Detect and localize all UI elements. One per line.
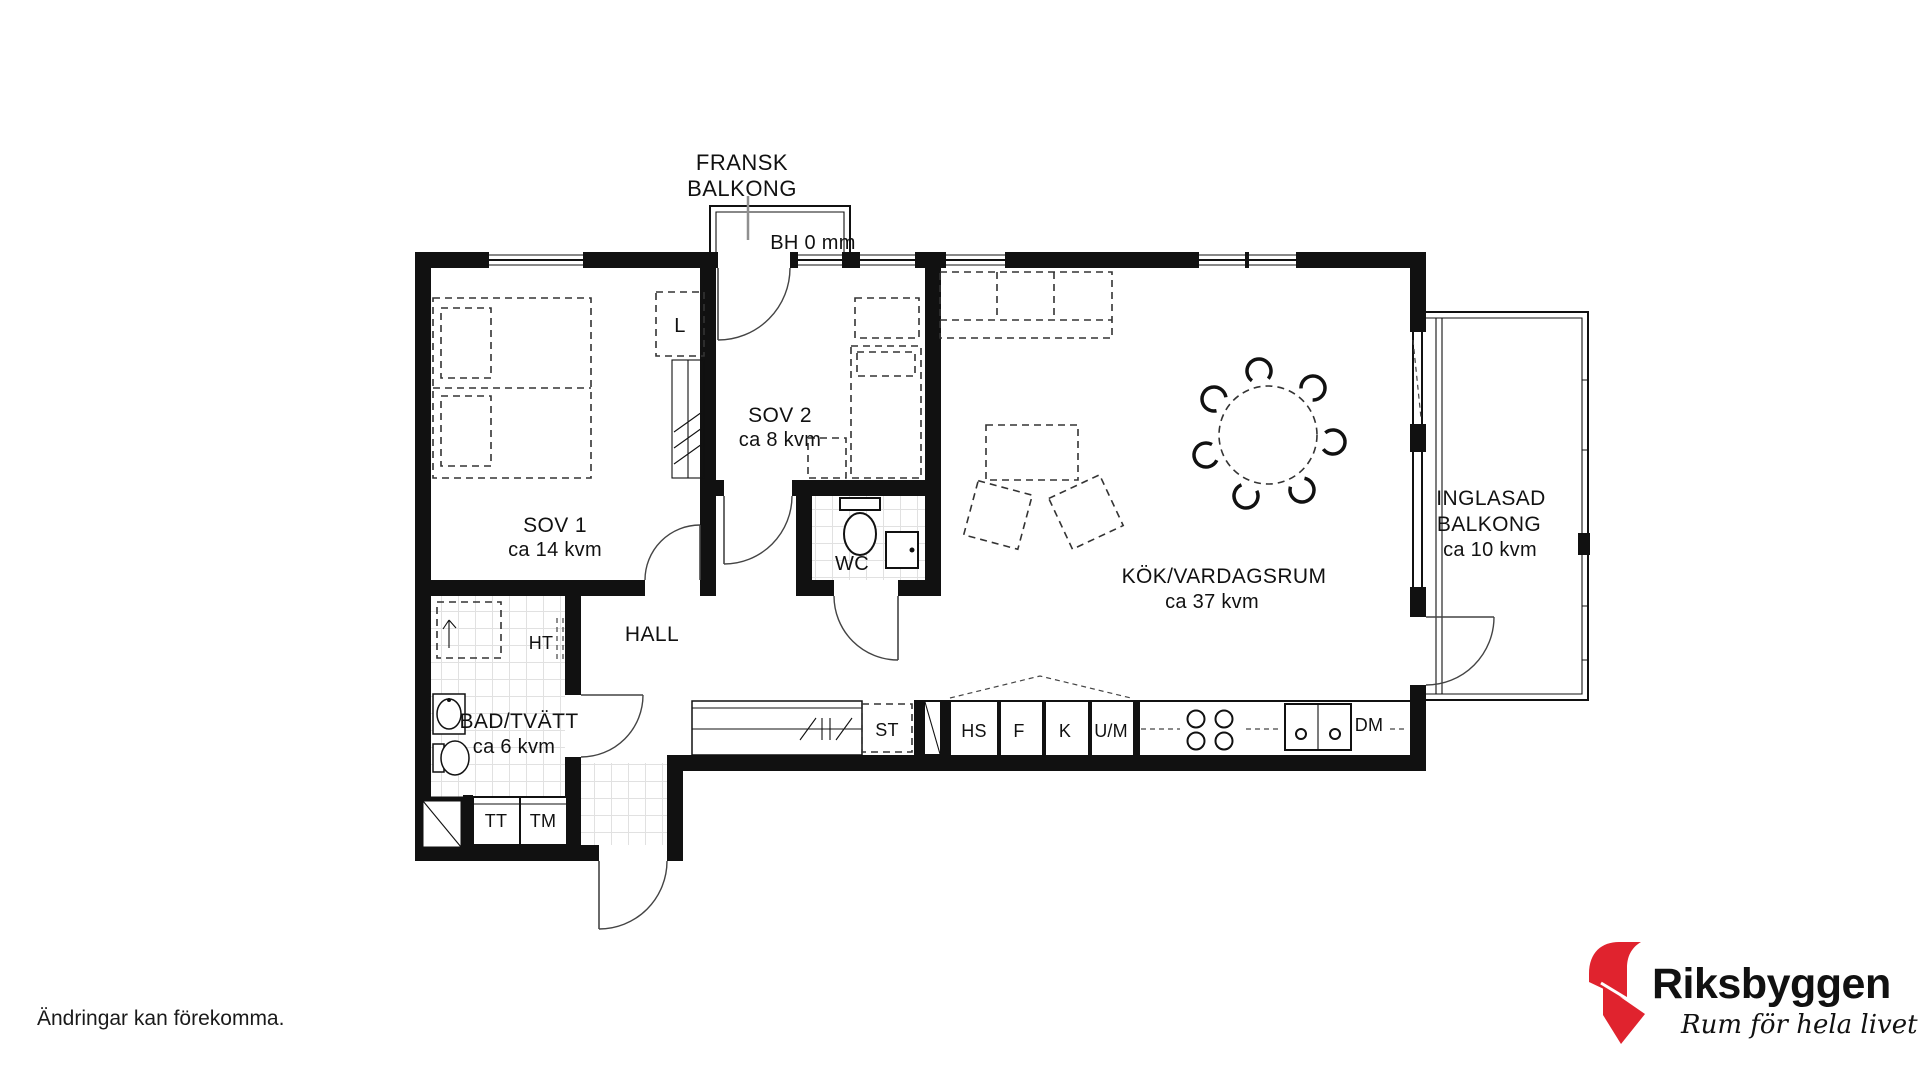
door-entrance bbox=[599, 861, 667, 929]
brand-name: Riksbyggen bbox=[1652, 960, 1891, 1008]
living-balcony-glazing bbox=[1413, 332, 1422, 587]
chair-icon bbox=[1288, 476, 1316, 504]
window-sov1 bbox=[484, 252, 588, 268]
fixture-label-st: ST bbox=[875, 720, 898, 740]
room-label-inglasad-1: INGLASAD bbox=[1436, 487, 1545, 510]
kitchen bbox=[941, 676, 1410, 750]
room-label-bad: BAD/TVÄTT bbox=[459, 710, 578, 733]
sofa bbox=[940, 272, 1112, 338]
room-area-sov2: ca 8 kvm bbox=[739, 429, 821, 451]
room-area-kok: ca 37 kvm bbox=[1165, 591, 1259, 613]
room-label-sov1: SOV 1 bbox=[523, 514, 587, 537]
fixture-label-hs: HS bbox=[961, 721, 986, 741]
room-label-kok: KÖK/VARDAGSRUM bbox=[1122, 565, 1327, 588]
chair-icon bbox=[1230, 480, 1262, 512]
fixture-label-dm: DM bbox=[1355, 715, 1383, 735]
closet-l-label: L bbox=[674, 315, 685, 337]
coffee-table bbox=[986, 425, 1078, 480]
floor-plan-page: FRANSK BALKONG BH 0 mm L SOV 2 ca 8 kvm … bbox=[0, 0, 1920, 1080]
room-label-hall: HALL bbox=[625, 623, 679, 646]
fixture-label-tm: TM bbox=[530, 811, 556, 831]
fixture-label-f: F bbox=[1013, 721, 1024, 741]
chair-icon bbox=[1200, 385, 1228, 413]
room-area-sov1: ca 14 kvm bbox=[508, 539, 602, 561]
window-living-1 bbox=[941, 252, 1010, 268]
fixture-label-ht: HT bbox=[529, 633, 553, 653]
dining-table bbox=[1190, 354, 1350, 512]
window-living-2 bbox=[1194, 252, 1301, 268]
toilet-icon bbox=[840, 498, 880, 510]
armchair bbox=[1049, 475, 1123, 549]
floor-plan-drawing: FRANSK BALKONG BH 0 mm L SOV 2 ca 8 kvm … bbox=[0, 0, 1920, 1080]
balcony-height-note: BH 0 mm bbox=[770, 232, 855, 254]
disclaimer-text: Ändringar kan förekomma. bbox=[37, 1007, 284, 1030]
chair-icon bbox=[1190, 439, 1222, 471]
chair-icon bbox=[1316, 425, 1350, 459]
hall-wardrobe bbox=[692, 701, 941, 755]
fixture-label-tt: TT bbox=[485, 811, 507, 831]
kitchen-sink-icon bbox=[1285, 704, 1351, 750]
door-french-balcony bbox=[718, 268, 790, 340]
brand-tagline: Rum för hela livet bbox=[1680, 1010, 1918, 1040]
doors bbox=[581, 268, 1494, 929]
chair-icon bbox=[1242, 354, 1276, 388]
tall-cabinet bbox=[924, 701, 941, 755]
chair-icon bbox=[1301, 376, 1326, 401]
armchair bbox=[964, 481, 1033, 550]
fixture-label-um: U/M bbox=[1094, 721, 1128, 741]
french-balcony-label-2: BALKONG bbox=[687, 176, 797, 201]
furniture-sov2 bbox=[808, 298, 921, 478]
window-sov2 bbox=[855, 252, 920, 268]
room-label-wc: WC bbox=[835, 553, 869, 575]
bed-sov1 bbox=[433, 298, 591, 478]
room-area-inglasad: ca 10 kvm bbox=[1443, 539, 1537, 561]
stove-icon bbox=[1188, 711, 1233, 750]
room-label-inglasad-2: BALKONG bbox=[1437, 513, 1541, 536]
door-sov1 bbox=[645, 525, 700, 580]
riksbyggen-logo: Riksbyggen Rum för hela livet bbox=[1589, 942, 1918, 1044]
door-sov2 bbox=[724, 496, 792, 564]
room-label-sov2: SOV 2 bbox=[748, 404, 812, 427]
door-wc bbox=[834, 596, 898, 660]
fixture-label-k: K bbox=[1059, 721, 1071, 741]
window-french-balcony bbox=[798, 255, 842, 265]
room-area-bad: ca 6 kvm bbox=[473, 736, 555, 758]
shaft bbox=[421, 799, 463, 849]
french-balcony-label-1: FRANSK bbox=[696, 150, 788, 175]
door-bath bbox=[581, 695, 643, 757]
